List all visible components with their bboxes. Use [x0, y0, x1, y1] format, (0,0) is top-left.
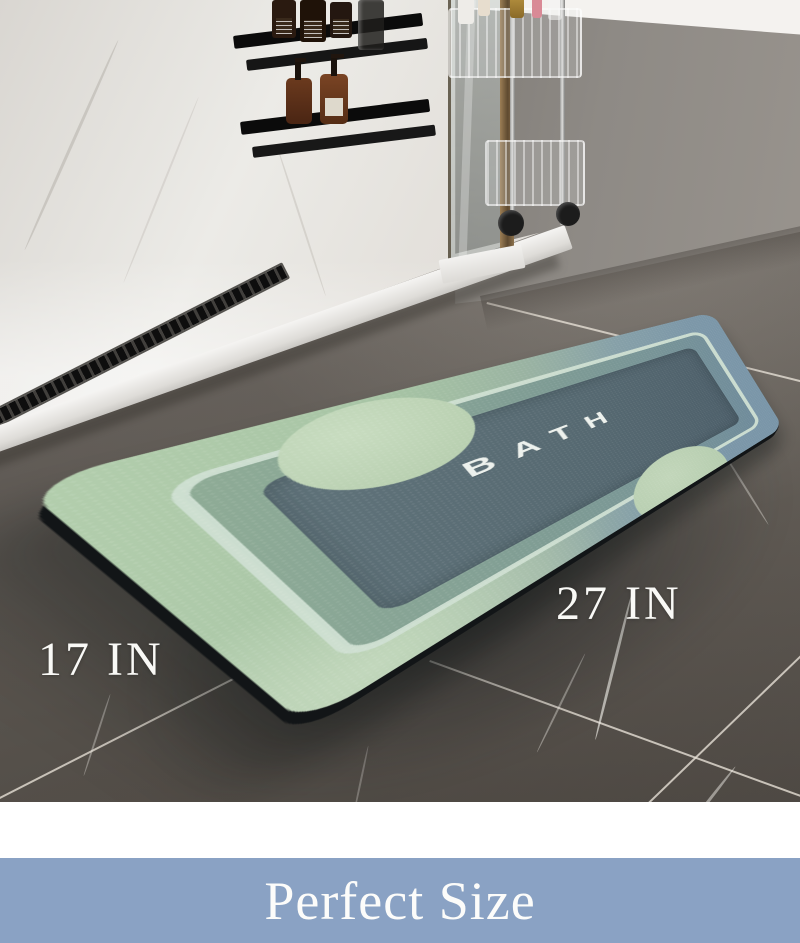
bottle-label — [304, 20, 322, 38]
cosmetic-bottle — [458, 0, 474, 24]
bottle-label — [333, 19, 348, 34]
banner-text: Perfect Size — [264, 870, 535, 932]
caption-banner: Perfect Size — [0, 858, 800, 943]
cart-wheel — [498, 210, 524, 236]
soap-pump-bottle — [286, 78, 312, 124]
pump-neck — [295, 60, 301, 80]
cosmetic-bottle — [548, 0, 562, 20]
bottle-label — [276, 18, 293, 34]
marble-vein — [123, 97, 200, 283]
bathroom-photo: BATH 17 IN 27 IN — [0, 0, 800, 802]
cosmetic-bottle — [478, 0, 490, 16]
marble-vein — [23, 39, 119, 250]
cart-wheel — [556, 202, 580, 226]
white-spacer — [0, 802, 800, 858]
glass-vase — [358, 0, 384, 50]
pump-neck — [331, 56, 337, 76]
dimension-label-width: 17 IN — [38, 632, 164, 687]
cosmetic-bottle — [510, 0, 524, 18]
cart-basket — [485, 140, 585, 206]
shampoo-bottle — [272, 0, 296, 38]
bottle-label — [325, 98, 343, 116]
dimension-label-length: 27 IN — [556, 576, 682, 631]
shampoo-bottle — [300, 0, 326, 42]
product-image: BATH 17 IN 27 IN Perfect Size — [0, 0, 800, 943]
pump-spout — [331, 54, 344, 58]
shampoo-bottle — [330, 2, 352, 38]
storage-cart — [440, 0, 590, 250]
pump-spout — [295, 58, 306, 62]
cosmetic-bottle — [532, 0, 542, 18]
